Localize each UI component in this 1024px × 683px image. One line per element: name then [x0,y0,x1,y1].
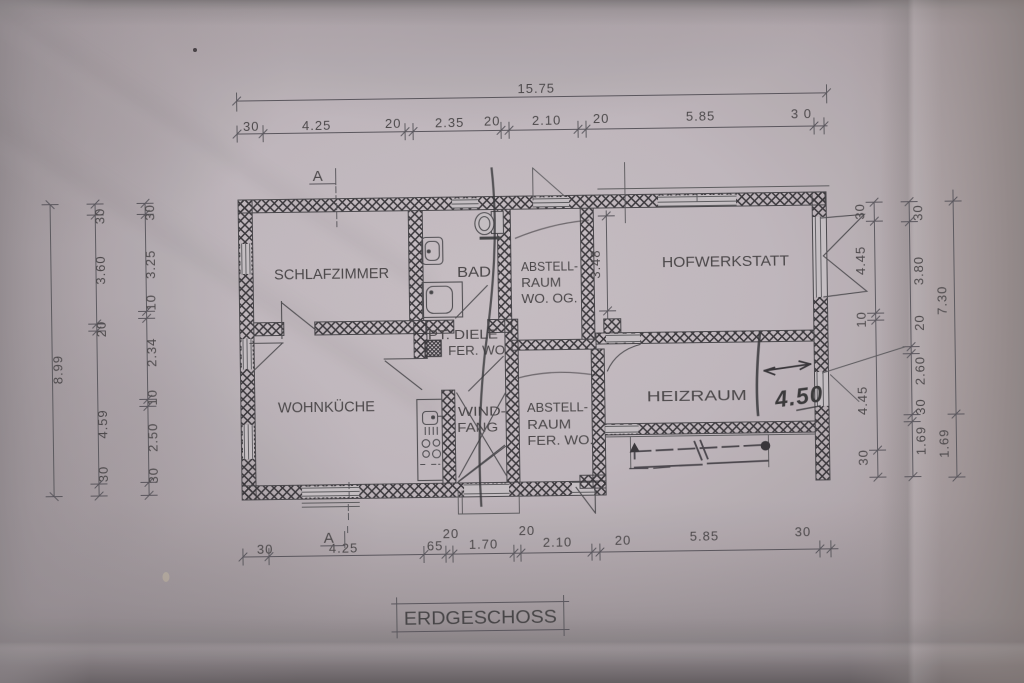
svg-text:SCHLAFZIMMER: SCHLAFZIMMER [274,265,389,284]
svg-text:1.69: 1.69 [913,426,928,456]
svg-text:20: 20 [615,533,632,548]
svg-text:20: 20 [484,113,501,128]
svg-text:15.75: 15.75 [517,81,555,97]
svg-text:3.25: 3.25 [143,250,158,280]
svg-text:4.25: 4.25 [302,118,332,133]
svg-text:FER. WO: FER. WO [448,342,505,358]
svg-text:20: 20 [94,321,109,338]
svg-text:A: A [313,168,323,185]
svg-text:BAD: BAD [457,264,491,281]
svg-text:HEIZRAUM: HEIZRAUM [647,387,747,405]
svg-text:30: 30 [243,119,260,134]
svg-text:20: 20 [912,314,927,331]
svg-text:30: 30 [852,203,867,220]
svg-text:2.34: 2.34 [144,338,159,368]
svg-text:3 0: 3 0 [791,106,812,121]
svg-text:4.59: 4.59 [95,409,110,439]
svg-text:WOHNKÜCHE: WOHNKÜCHE [278,397,375,416]
svg-text:30: 30 [910,204,925,221]
svg-text:3.80: 3.80 [911,256,926,286]
svg-text:65: 65 [427,538,444,553]
svg-text:30: 30 [92,208,107,225]
svg-text:7.30: 7.30 [934,285,949,315]
svg-text:2.60: 2.60 [912,356,927,386]
svg-text:WO. OG.: WO. OG. [521,290,577,306]
svg-text:10: 10 [143,294,158,311]
svg-text:20: 20 [519,523,536,538]
svg-text:5.85: 5.85 [690,528,720,543]
svg-text:20: 20 [385,116,402,131]
svg-text:30: 30 [146,467,161,484]
svg-text:2.35: 2.35 [435,115,465,130]
svg-text:8.99: 8.99 [50,355,65,385]
svg-text:A: A [324,530,334,547]
svg-text:ABSTELL-: ABSTELL- [527,399,588,415]
svg-text:HOFWERKSTATT: HOFWERKSTATT [662,252,789,271]
svg-text:30: 30 [142,204,157,221]
svg-text:RAUM: RAUM [527,416,571,432]
svg-text:3.48: 3.48 [588,249,603,279]
svg-text:20: 20 [593,111,610,126]
svg-text:4.45: 4.45 [853,246,868,276]
svg-text:30: 30 [96,466,111,483]
svg-text:10: 10 [854,311,869,328]
svg-text:1.70: 1.70 [469,536,499,551]
svg-text:ERDGESCHOSS: ERDGESCHOSS [404,607,557,629]
svg-text:1.69: 1.69 [936,428,951,458]
svg-text:4.45: 4.45 [855,386,870,416]
svg-text:RAUM: RAUM [521,275,561,291]
svg-text:30: 30 [257,542,274,557]
svg-text:ABSTELL-: ABSTELL- [521,258,578,274]
svg-text:30: 30 [795,524,812,539]
svg-text:2.10: 2.10 [543,534,573,549]
svg-text:FER. WO.: FER. WO. [527,432,593,448]
svg-text:5.85: 5.85 [686,108,716,123]
svg-text:3.60: 3.60 [93,255,108,285]
svg-text:2.10: 2.10 [532,113,562,128]
svg-text:2.50: 2.50 [145,423,160,453]
svg-text:10: 10 [145,389,160,406]
svg-text:20: 20 [443,526,460,541]
svg-text:30: 30 [913,398,928,415]
svg-text:30: 30 [856,449,871,466]
